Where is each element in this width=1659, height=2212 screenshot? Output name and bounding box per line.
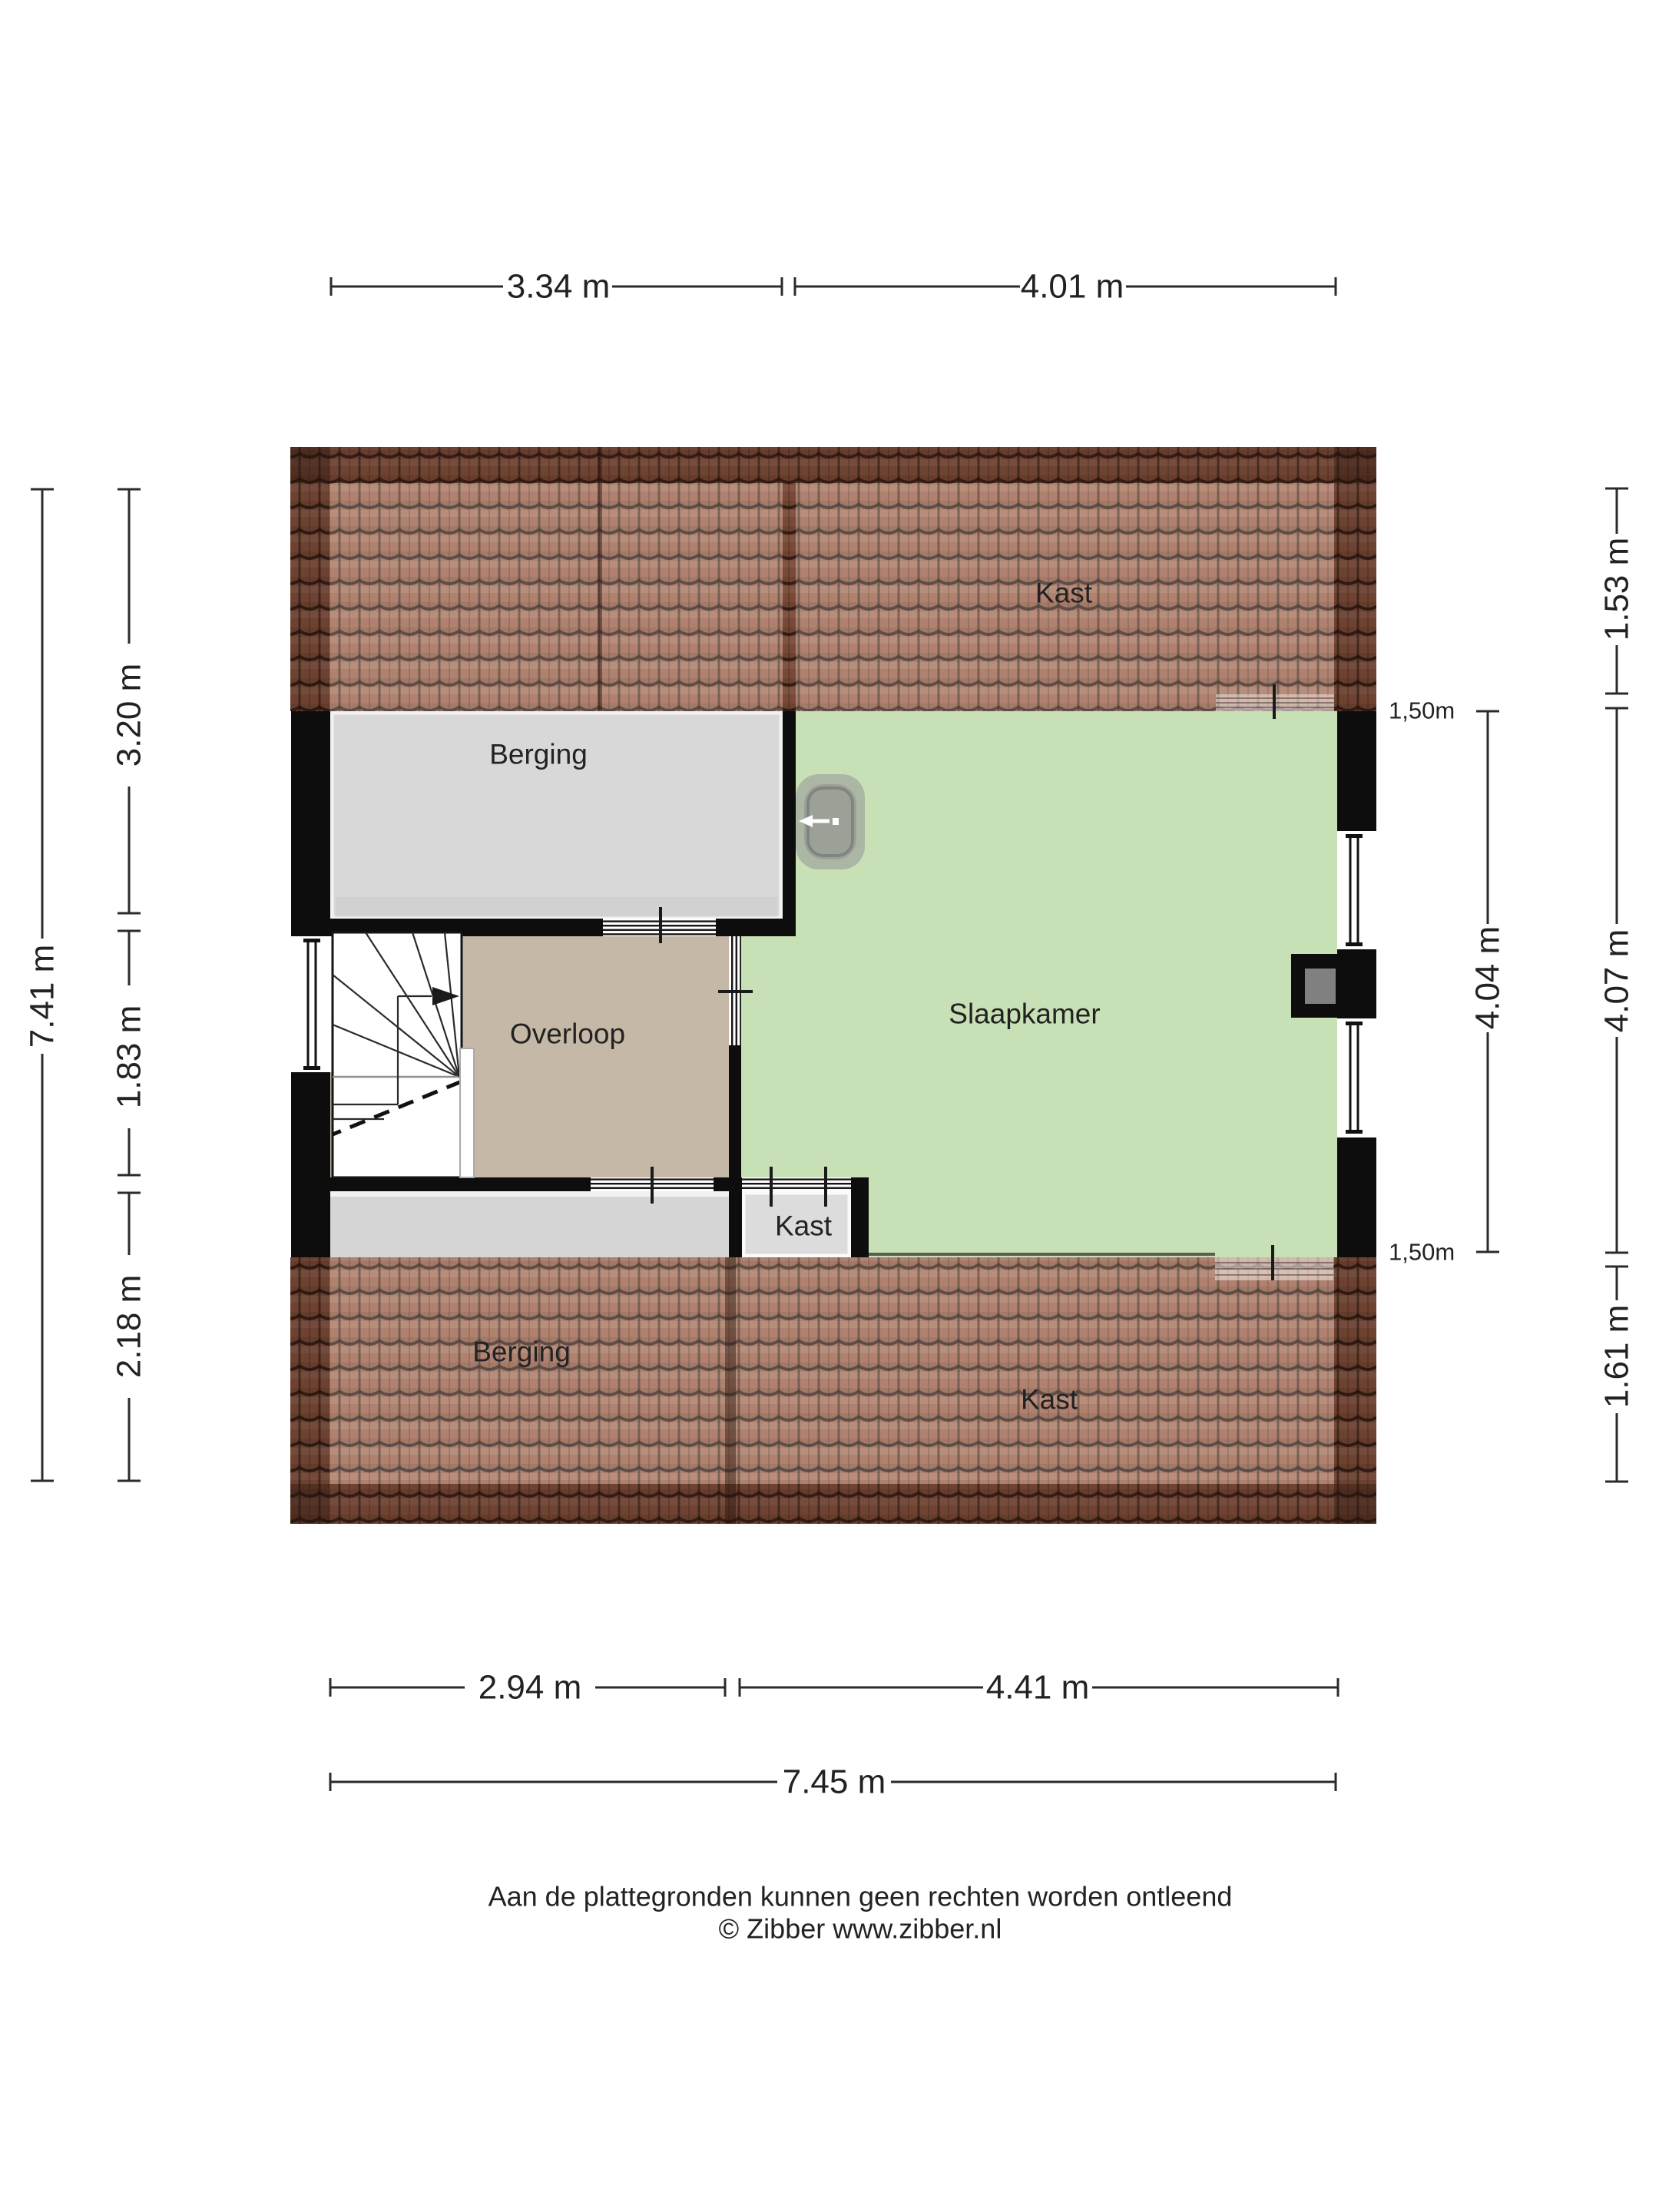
svg-text:2.94 m: 2.94 m [478, 1669, 582, 1707]
svg-text:7.41 m: 7.41 m [24, 945, 61, 1048]
svg-text:Kast: Kast [775, 1210, 833, 1242]
svg-text:4.41 m: 4.41 m [986, 1669, 1090, 1707]
svg-text:3.34 m: 3.34 m [507, 268, 611, 306]
svg-text:4.04 m: 4.04 m [1469, 926, 1507, 1030]
svg-text:1.83 m: 1.83 m [111, 1005, 148, 1109]
svg-text:© Zibber www.zibber.nl: © Zibber www.zibber.nl [719, 1913, 1002, 1945]
svg-text:1.61 m: 1.61 m [1598, 1305, 1636, 1409]
svg-text:4.01 m: 4.01 m [1021, 268, 1124, 306]
svg-text:Slaapkamer: Slaapkamer [949, 998, 1100, 1030]
svg-text:2.18 m: 2.18 m [111, 1275, 148, 1379]
svg-text:4.07 m: 4.07 m [1598, 929, 1636, 1033]
svg-text:Kast: Kast [1035, 578, 1093, 609]
svg-text:Berging: Berging [489, 739, 588, 770]
svg-text:Overloop: Overloop [510, 1018, 625, 1050]
svg-text:1,50m: 1,50m [1389, 1239, 1455, 1266]
svg-text:Berging: Berging [472, 1336, 571, 1368]
svg-text:Kast: Kast [1021, 1384, 1078, 1416]
svg-text:7.45 m: 7.45 m [783, 1763, 886, 1801]
svg-text:1,50m: 1,50m [1389, 697, 1455, 724]
svg-text:1.53 m: 1.53 m [1598, 538, 1636, 641]
svg-text:3.20 m: 3.20 m [111, 664, 148, 767]
svg-text:Aan de plattegronden kunnen ge: Aan de plattegronden kunnen geen rechten… [488, 1881, 1233, 1912]
